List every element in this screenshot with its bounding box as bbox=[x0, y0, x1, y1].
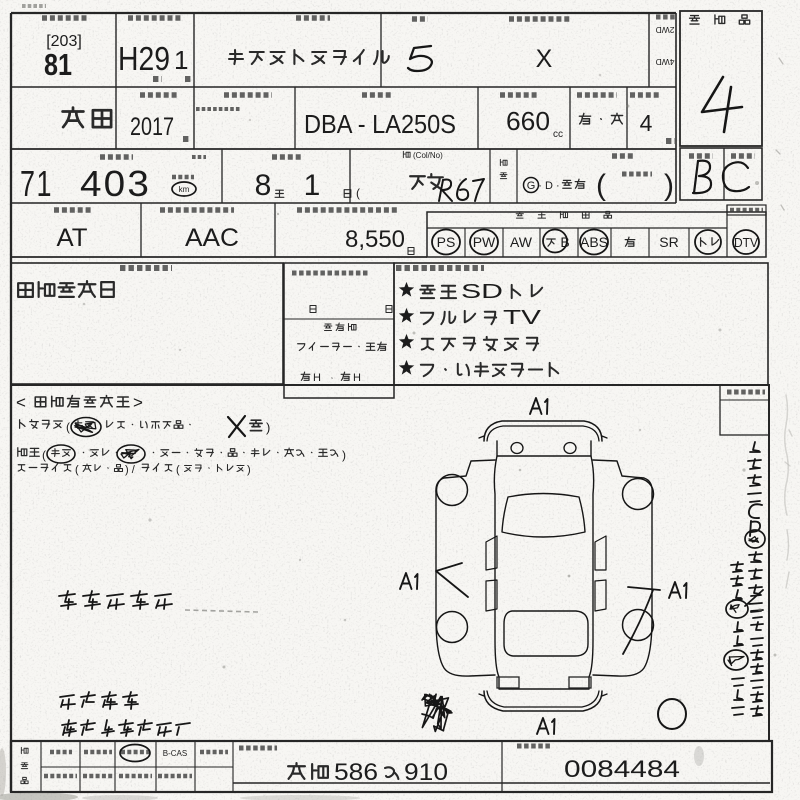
svg-text:B-CAS: B-CAS bbox=[163, 749, 187, 758]
svg-text:· D ·: · D · bbox=[538, 180, 559, 192]
svg-text:<: < bbox=[16, 393, 26, 412]
svg-text:DBA - LA250S: DBA - LA250S bbox=[304, 109, 456, 139]
svg-text:PS: PS bbox=[437, 234, 456, 250]
svg-text:4: 4 bbox=[640, 110, 653, 136]
svg-text:TV: TV bbox=[503, 307, 542, 329]
svg-text:G: G bbox=[527, 180, 536, 192]
svg-text:(: ( bbox=[66, 420, 70, 434]
svg-text:>: > bbox=[133, 393, 143, 412]
svg-text:81: 81 bbox=[44, 47, 72, 82]
svg-text:X: X bbox=[536, 45, 553, 73]
svg-text:H: H bbox=[313, 372, 321, 384]
svg-text:ABS: ABS bbox=[580, 234, 608, 250]
svg-text:403: 403 bbox=[80, 163, 151, 204]
svg-text:71: 71 bbox=[20, 163, 53, 204]
svg-text:1: 1 bbox=[174, 45, 188, 75]
svg-text:): ) bbox=[266, 420, 270, 435]
svg-text:H: H bbox=[353, 372, 361, 384]
svg-text:AT: AT bbox=[57, 224, 88, 252]
svg-text:AW: AW bbox=[510, 234, 533, 250]
svg-text:2WD: 2WD bbox=[656, 25, 675, 35]
svg-text:(: ( bbox=[356, 186, 360, 200]
svg-text:AAC: AAC bbox=[185, 224, 239, 252]
svg-text:SR: SR bbox=[659, 234, 678, 250]
svg-text:0084484: 0084484 bbox=[564, 756, 680, 783]
svg-text:cc: cc bbox=[553, 129, 563, 140]
svg-text:(: ( bbox=[75, 464, 79, 476]
svg-text:(: ( bbox=[42, 448, 46, 462]
svg-text:) /: ) / bbox=[125, 464, 136, 476]
svg-text:SD: SD bbox=[461, 281, 503, 303]
svg-text:8: 8 bbox=[255, 169, 272, 202]
svg-text:4WD: 4WD bbox=[656, 57, 675, 67]
svg-text:910: 910 bbox=[404, 759, 448, 786]
svg-text:H29: H29 bbox=[118, 40, 170, 77]
svg-text:): ) bbox=[247, 464, 251, 476]
svg-text:): ) bbox=[342, 448, 346, 462]
svg-text:PW: PW bbox=[473, 234, 496, 250]
svg-text:660: 660 bbox=[506, 106, 550, 136]
svg-text:8,550: 8,550 bbox=[345, 226, 405, 253]
svg-text:): ) bbox=[664, 169, 674, 202]
svg-text:1: 1 bbox=[304, 169, 321, 202]
svg-text:DTV: DTV bbox=[734, 235, 758, 250]
svg-text:2017: 2017 bbox=[130, 113, 174, 141]
svg-text:(: ( bbox=[176, 464, 180, 476]
svg-text:586: 586 bbox=[334, 759, 378, 786]
svg-text:km: km bbox=[179, 185, 190, 194]
svg-text:(: ( bbox=[596, 169, 606, 202]
svg-text:(Col/No): (Col/No) bbox=[413, 151, 443, 160]
